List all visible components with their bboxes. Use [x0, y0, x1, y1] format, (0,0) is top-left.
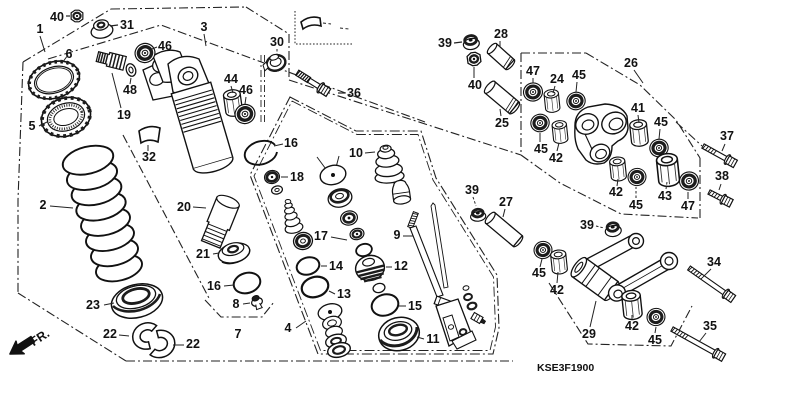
- svg-text:13: 13: [337, 287, 351, 301]
- svg-text:39: 39: [580, 218, 594, 232]
- svg-text:35: 35: [703, 319, 717, 333]
- svg-text:27: 27: [499, 195, 513, 209]
- svg-text:22: 22: [103, 327, 117, 341]
- svg-text:17: 17: [314, 229, 328, 243]
- svg-text:24: 24: [550, 72, 564, 86]
- svg-text:16: 16: [284, 136, 298, 150]
- svg-text:20: 20: [177, 200, 191, 214]
- svg-text:8: 8: [233, 297, 240, 311]
- svg-text:15: 15: [408, 299, 422, 313]
- svg-text:42: 42: [549, 151, 563, 165]
- svg-text:1: 1: [37, 22, 44, 36]
- svg-text:19: 19: [117, 108, 131, 122]
- svg-text:47: 47: [526, 64, 540, 78]
- svg-text:37: 37: [720, 129, 734, 143]
- svg-text:40: 40: [50, 10, 64, 24]
- svg-text:42: 42: [609, 185, 623, 199]
- svg-text:23: 23: [86, 298, 100, 312]
- svg-text:43: 43: [658, 189, 672, 203]
- svg-text:14: 14: [329, 259, 343, 273]
- svg-text:12: 12: [394, 259, 408, 273]
- svg-text:45: 45: [629, 198, 643, 212]
- svg-text:40: 40: [468, 78, 482, 92]
- svg-text:29: 29: [582, 327, 596, 341]
- svg-text:28: 28: [494, 27, 508, 41]
- svg-text:3: 3: [201, 20, 208, 34]
- svg-text:45: 45: [572, 68, 586, 82]
- svg-text:5: 5: [29, 119, 36, 133]
- svg-text:6: 6: [66, 47, 73, 61]
- svg-text:46: 46: [239, 83, 253, 97]
- svg-text:39: 39: [465, 183, 479, 197]
- svg-text:45: 45: [654, 115, 668, 129]
- svg-text:41: 41: [631, 101, 645, 115]
- svg-text:9: 9: [394, 228, 401, 242]
- svg-text:2: 2: [40, 198, 47, 212]
- svg-text:18: 18: [290, 170, 304, 184]
- svg-text:22: 22: [186, 337, 200, 351]
- svg-text:21: 21: [196, 247, 210, 261]
- svg-text:45: 45: [534, 142, 548, 156]
- svg-text:25: 25: [495, 116, 509, 130]
- svg-text:26: 26: [624, 56, 638, 70]
- svg-text:7: 7: [235, 327, 242, 341]
- svg-text:11: 11: [426, 332, 439, 346]
- svg-text:31: 31: [120, 18, 134, 32]
- svg-text:36: 36: [347, 86, 361, 100]
- svg-text:4: 4: [285, 321, 292, 335]
- svg-text:39: 39: [438, 36, 452, 50]
- svg-text:44: 44: [224, 72, 238, 86]
- svg-text:32: 32: [142, 150, 156, 164]
- svg-text:38: 38: [715, 169, 729, 183]
- svg-text:45: 45: [532, 266, 546, 280]
- svg-text:42: 42: [625, 319, 639, 333]
- svg-text:47: 47: [681, 199, 695, 213]
- svg-text:16: 16: [207, 279, 221, 293]
- svg-text:48: 48: [123, 83, 137, 97]
- svg-text:KSE3F1900: KSE3F1900: [537, 362, 594, 374]
- svg-text:46: 46: [158, 39, 172, 53]
- svg-text:30: 30: [270, 35, 284, 49]
- svg-text:34: 34: [707, 255, 721, 269]
- svg-text:45: 45: [648, 333, 662, 347]
- svg-text:42: 42: [550, 283, 564, 297]
- svg-text:10: 10: [349, 146, 363, 160]
